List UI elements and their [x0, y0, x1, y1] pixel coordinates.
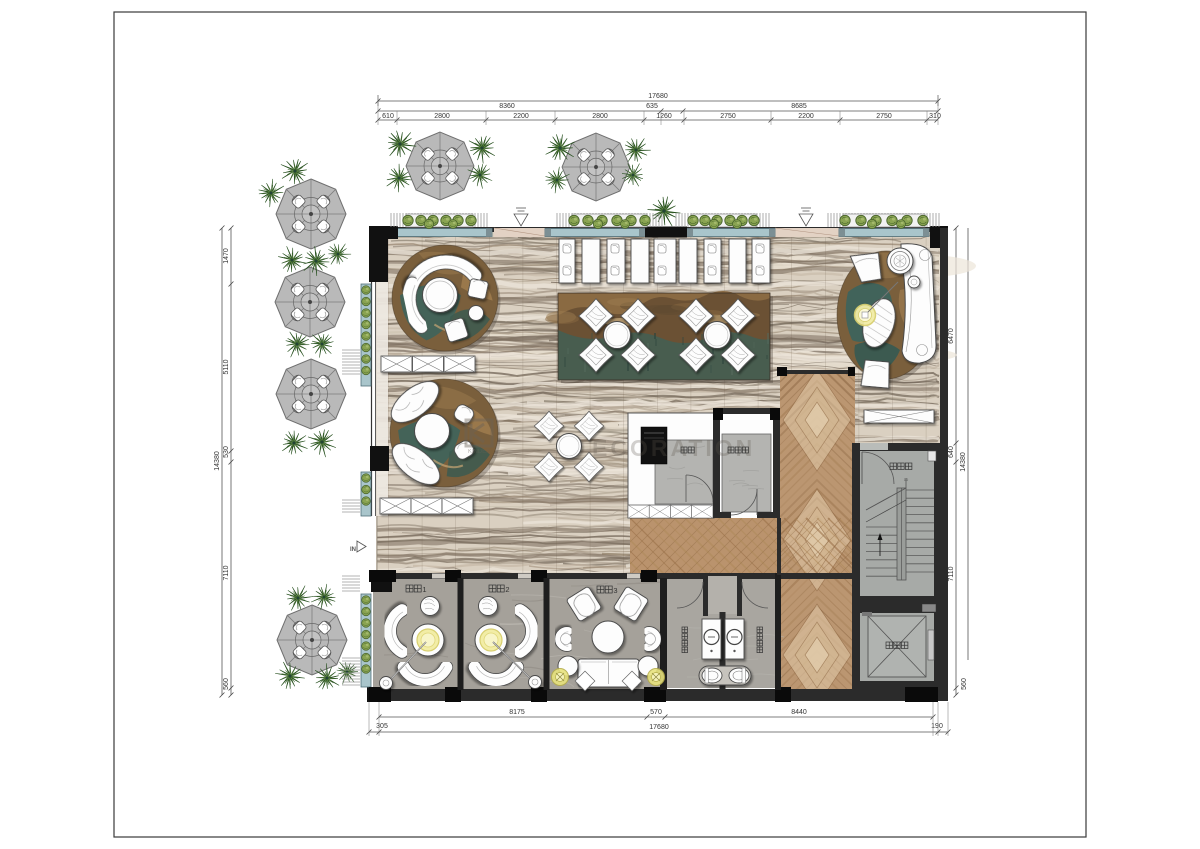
- svg-text:610: 610: [382, 113, 394, 120]
- svg-text:2200: 2200: [798, 113, 814, 120]
- svg-text:2750: 2750: [876, 113, 892, 120]
- svg-text:8685: 8685: [791, 103, 807, 110]
- svg-text:14380: 14380: [960, 452, 967, 472]
- svg-text:8360: 8360: [499, 103, 515, 110]
- svg-text:1470: 1470: [223, 248, 230, 264]
- svg-text:6470: 6470: [948, 328, 955, 344]
- svg-text:17680: 17680: [648, 93, 668, 100]
- svg-text:640: 640: [948, 446, 955, 458]
- svg-text:10: 10: [904, 477, 909, 482]
- svg-text:5110: 5110: [223, 359, 230, 374]
- svg-text:305: 305: [376, 723, 388, 730]
- svg-text:530: 530: [223, 446, 230, 458]
- svg-text:14380: 14380: [214, 451, 221, 471]
- svg-text:310: 310: [929, 113, 941, 120]
- svg-text:3: 3: [613, 586, 617, 595]
- svg-text:17680: 17680: [649, 724, 669, 731]
- svg-text:2800: 2800: [592, 113, 608, 120]
- svg-text:1260: 1260: [656, 113, 672, 120]
- svg-text:2200: 2200: [513, 113, 529, 120]
- svg-text:KINDEX: KINDEX: [468, 449, 490, 455]
- svg-text:8175: 8175: [509, 709, 525, 716]
- svg-text:7110: 7110: [223, 565, 230, 580]
- svg-text:560: 560: [961, 678, 968, 690]
- svg-text:IN: IN: [350, 547, 356, 553]
- svg-text:8440: 8440: [791, 709, 807, 716]
- svg-text:7110: 7110: [948, 566, 955, 581]
- svg-text:2: 2: [505, 585, 509, 594]
- svg-text:2800: 2800: [434, 113, 450, 120]
- svg-text:570: 570: [650, 709, 662, 716]
- svg-text:2750: 2750: [720, 113, 736, 120]
- svg-text:635: 635: [646, 103, 658, 110]
- svg-text:1: 1: [422, 585, 426, 594]
- svg-text:560: 560: [223, 678, 230, 690]
